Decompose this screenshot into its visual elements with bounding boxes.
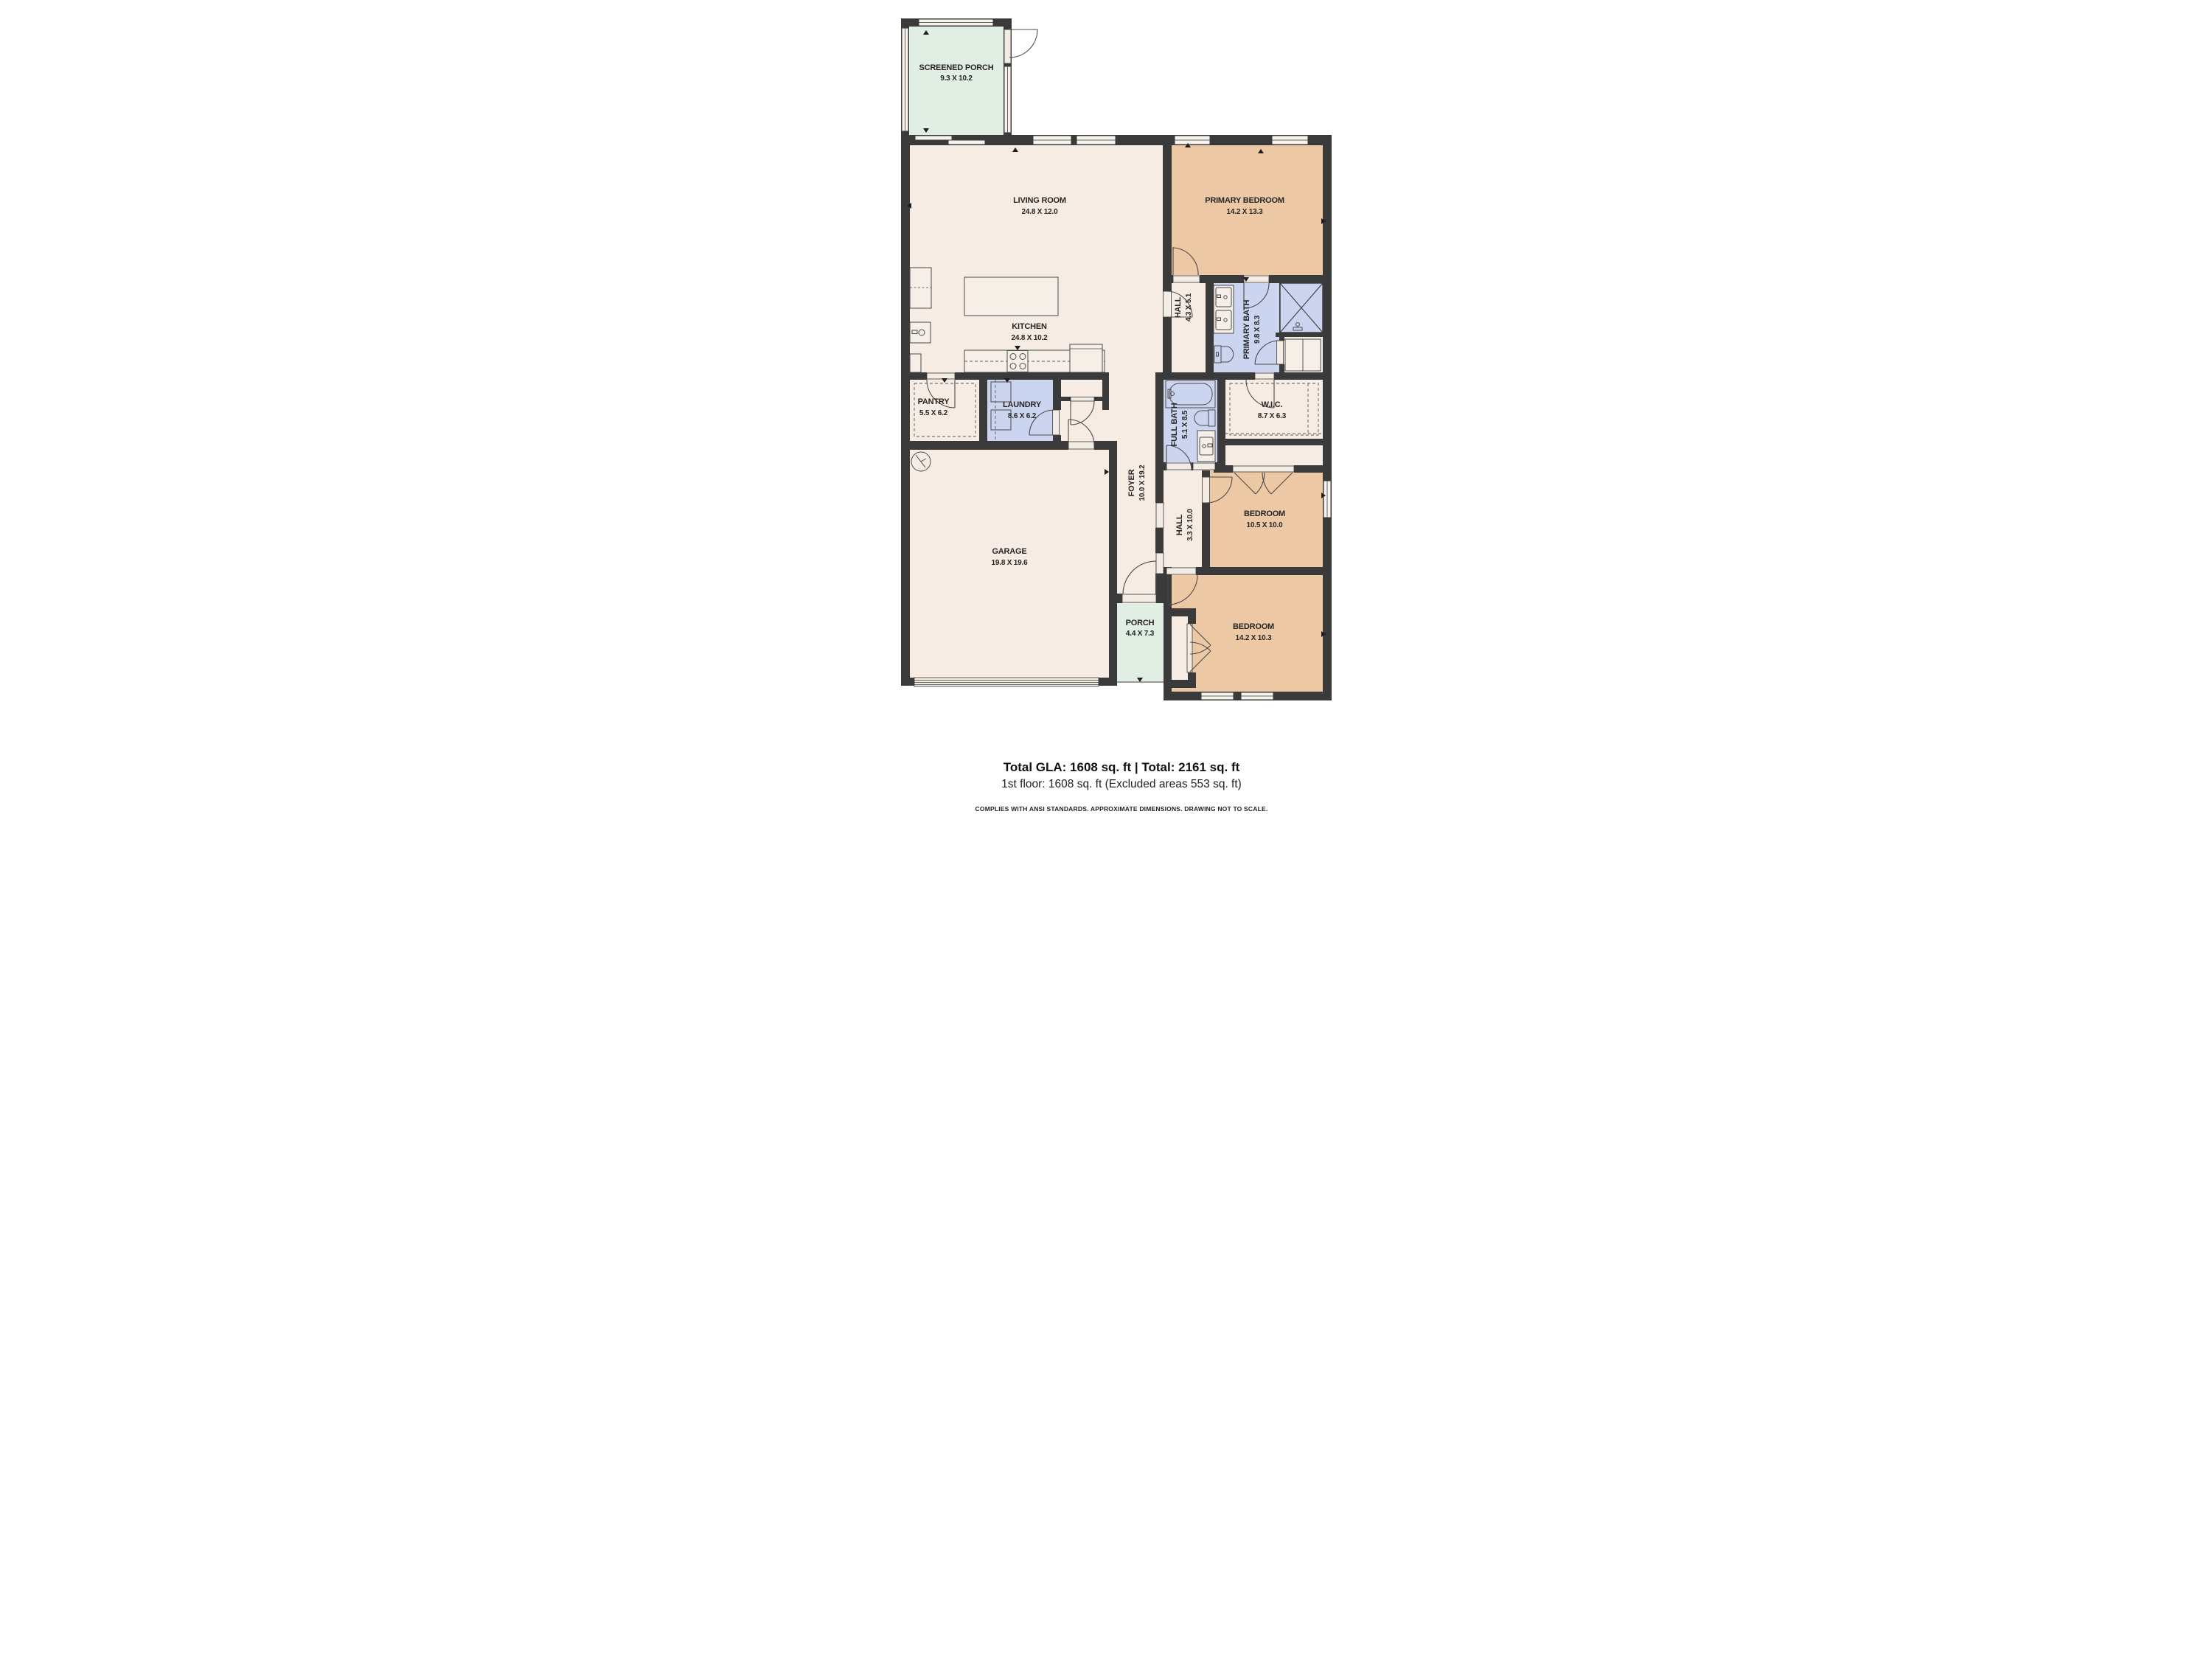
primary-bedroom-label: PRIMARY BEDROOM xyxy=(1205,196,1284,205)
svg-text:8.6 X 6.2: 8.6 X 6.2 xyxy=(1008,412,1037,420)
garage-label: GARAGE xyxy=(992,547,1026,556)
front-porch-floor xyxy=(1117,603,1164,682)
svg-text:5.5 X 6.2: 5.5 X 6.2 xyxy=(919,409,948,417)
wic-label: W.I.C. xyxy=(1262,400,1283,409)
vanity xyxy=(1197,431,1215,462)
svg-text:FULL BATH: FULL BATH xyxy=(1170,403,1179,446)
bedroom-closet-floor xyxy=(1172,616,1188,680)
porch-label: PORCH xyxy=(1126,619,1155,627)
shower xyxy=(1280,283,1323,333)
svg-text:10.0 X 19.2: 10.0 X 19.2 xyxy=(1138,465,1147,501)
first-floor-text: 1st floor: 1608 sq. ft (Excluded areas 5… xyxy=(1001,778,1242,790)
laundry-label: LAUNDRY xyxy=(1003,400,1042,409)
svg-text:8.7 X 6.3: 8.7 X 6.3 xyxy=(1258,412,1287,420)
screened-porch-label: SCREENED PORCH xyxy=(919,63,993,72)
kitchen-island xyxy=(964,277,1058,316)
svg-text:3.3 X 10.0: 3.3 X 10.0 xyxy=(1186,509,1194,541)
svg-text:14.2 X 10.3: 14.2 X 10.3 xyxy=(1236,634,1273,642)
footer: Total GLA: 1608 sq. ft | Total: 2161 sq.… xyxy=(975,760,1268,813)
svg-text:24.8 X 12.0: 24.8 X 12.0 xyxy=(1022,208,1059,216)
floor-plan-svg: SCREENED PORCH 9.3 X 10.2 LIVING ROOM 24… xyxy=(553,0,1659,829)
svg-text:4.3 X 5.1: 4.3 X 5.1 xyxy=(1185,293,1193,321)
svg-text:HALL: HALL xyxy=(1175,514,1184,535)
bedroom-mid-floor xyxy=(1210,470,1323,567)
svg-text:24.8 X 10.2: 24.8 X 10.2 xyxy=(1012,334,1048,342)
svg-text:4.4 X 7.3: 4.4 X 7.3 xyxy=(1126,630,1155,638)
stove xyxy=(1007,351,1028,372)
total-gla-text: Total GLA: 1608 sq. ft | Total: 2161 sq.… xyxy=(1004,760,1240,774)
disclaimer-text: COMPLIES WITH ANSI STANDARDS. APPROXIMAT… xyxy=(975,805,1268,813)
kitchen-label: KITCHEN xyxy=(1012,322,1047,331)
svg-text:14.2 X 13.3: 14.2 X 13.3 xyxy=(1227,208,1264,216)
svg-text:HALL: HALL xyxy=(1174,296,1183,318)
svg-text:5.1 X 8.5: 5.1 X 8.5 xyxy=(1181,410,1189,439)
svg-text:PRIMARY BATH: PRIMARY BATH xyxy=(1242,299,1251,359)
svg-text:10.5 X 10.0: 10.5 X 10.0 xyxy=(1247,521,1284,529)
floor-plan-page: SCREENED PORCH 9.3 X 10.2 LIVING ROOM 24… xyxy=(553,0,1659,829)
linen-cabinet xyxy=(1285,339,1321,371)
pantry-label: PANTRY xyxy=(918,397,950,406)
bedroom-bottom-label: BEDROOM xyxy=(1233,622,1274,631)
svg-text:FOYER: FOYER xyxy=(1127,469,1136,496)
svg-text:9.8 X 8.3: 9.8 X 8.3 xyxy=(1253,315,1262,344)
double-vanity xyxy=(1214,285,1234,333)
svg-text:19.8 X 19.6: 19.8 X 19.6 xyxy=(992,559,1029,567)
bedroom-mid-window xyxy=(1324,481,1331,518)
svg-text:9.3 X 10.2: 9.3 X 10.2 xyxy=(940,74,973,83)
porch-exterior-door xyxy=(1009,29,1037,58)
bedroom-mid-label: BEDROOM xyxy=(1244,509,1285,518)
living-room-label: LIVING ROOM xyxy=(1013,196,1066,205)
garage-door xyxy=(914,678,1099,686)
